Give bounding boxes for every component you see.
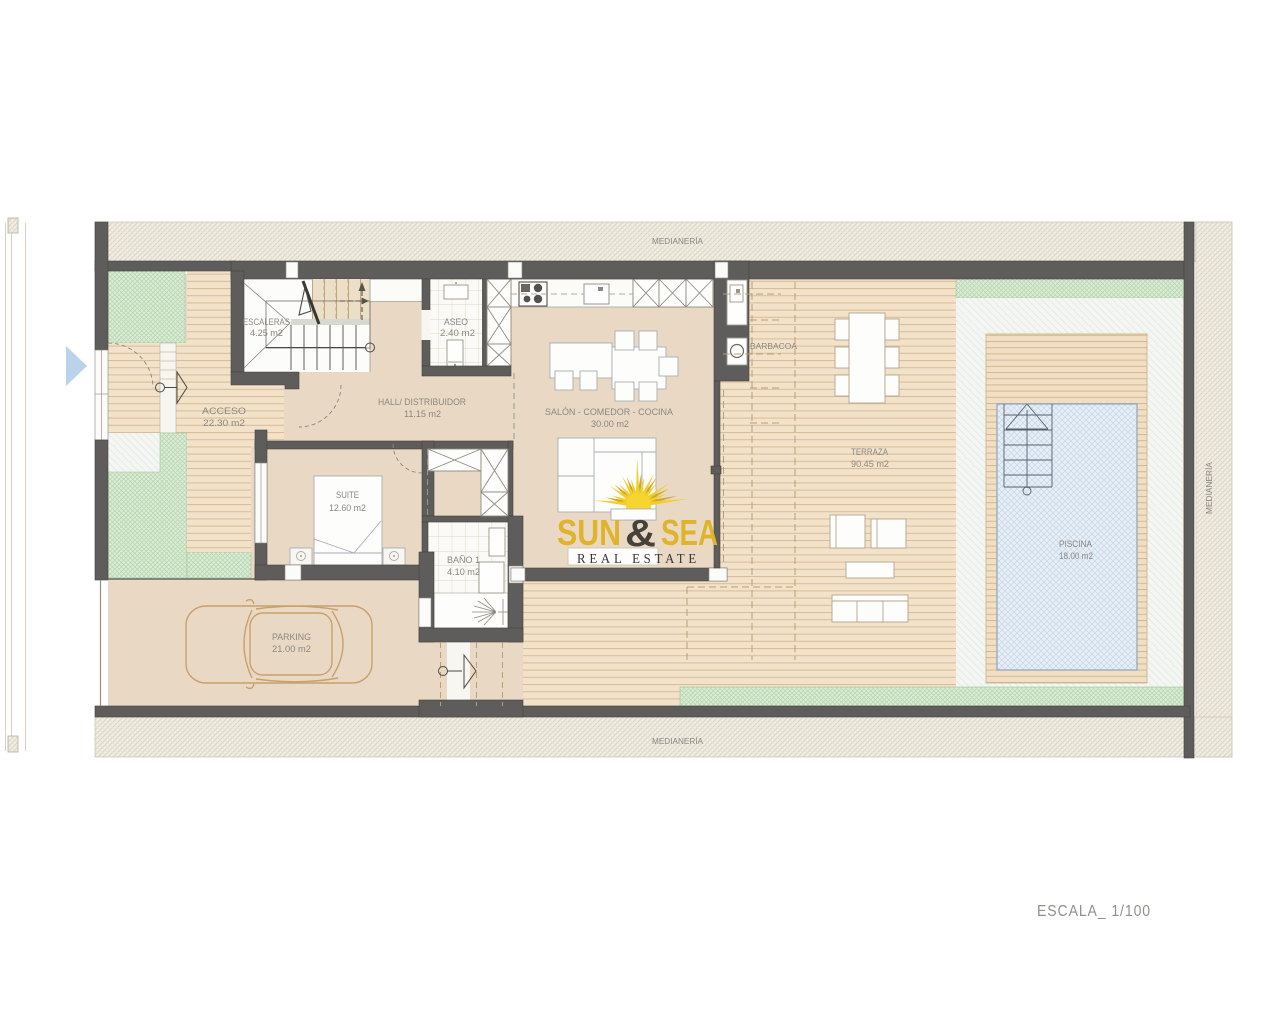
svg-text:PISCINA: PISCINA bbox=[1059, 539, 1092, 549]
svg-text:90.45 m2: 90.45 m2 bbox=[851, 459, 889, 469]
svg-text:ACCESO: ACCESO bbox=[202, 406, 246, 416]
svg-text:ASEO: ASEO bbox=[444, 317, 468, 327]
svg-text:ESCALA_ 1/100: ESCALA_ 1/100 bbox=[1037, 903, 1151, 920]
svg-text:TERRAZA: TERRAZA bbox=[851, 447, 888, 457]
svg-text:SALÓN - COMEDOR - COCINA: SALÓN - COMEDOR - COCINA bbox=[545, 407, 673, 417]
svg-text:MEDIANERÍA: MEDIANERÍA bbox=[1205, 461, 1214, 514]
svg-text:MEDIANERÍA: MEDIANERÍA bbox=[652, 737, 704, 746]
svg-text:18.00 m2: 18.00 m2 bbox=[1059, 551, 1093, 561]
svg-text:SUITE: SUITE bbox=[336, 490, 359, 500]
svg-text:HALL/ DISTRIBUIDOR: HALL/ DISTRIBUIDOR bbox=[378, 397, 466, 407]
svg-text:&: & bbox=[625, 513, 656, 555]
svg-text:ESCALERAS: ESCALERAS bbox=[243, 317, 290, 327]
svg-text:4.10 m2: 4.10 m2 bbox=[447, 567, 480, 577]
svg-text:PARKING: PARKING bbox=[272, 632, 311, 642]
svg-text:SEA: SEA bbox=[661, 512, 718, 553]
svg-text:BAÑO 1: BAÑO 1 bbox=[447, 555, 480, 565]
svg-text:BARBACOA: BARBACOA bbox=[750, 342, 798, 351]
svg-text:4.25 m2: 4.25 m2 bbox=[250, 328, 283, 338]
svg-text:MEDIANERÍA: MEDIANERÍA bbox=[652, 237, 704, 246]
svg-text:11.15 m2: 11.15 m2 bbox=[404, 409, 441, 419]
svg-text:12.60 m2: 12.60 m2 bbox=[329, 503, 366, 513]
svg-text:SUN: SUN bbox=[557, 512, 621, 553]
svg-text:2.40 m2: 2.40 m2 bbox=[440, 328, 475, 338]
svg-text:22.30 m2: 22.30 m2 bbox=[203, 418, 245, 428]
svg-text:21.00 m2: 21.00 m2 bbox=[272, 644, 311, 654]
svg-text:30.00 m2: 30.00 m2 bbox=[591, 419, 629, 429]
svg-text:REAL ESTATE: REAL ESTATE bbox=[577, 551, 700, 566]
